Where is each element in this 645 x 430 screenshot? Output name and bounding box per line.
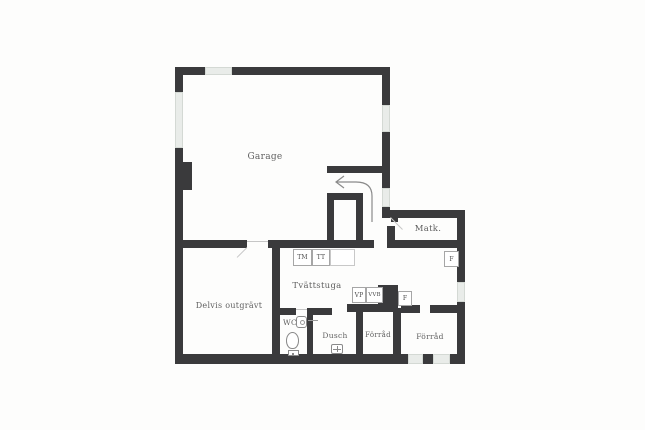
fixture-freezer-2: F <box>444 251 459 267</box>
wall-mid-2 <box>268 240 374 248</box>
wall-mid-1 <box>175 240 247 248</box>
room-label-garage: Garage <box>230 152 300 162</box>
fixture-washing-machine: TM <box>293 249 312 266</box>
fixture-water-heater: VVB <box>366 287 383 303</box>
room-label-delvis: Delvis outgrävt <box>188 301 270 310</box>
room-label-dusch: Dusch <box>315 331 355 340</box>
window-right <box>457 282 465 302</box>
room-label-forrad-2: Förråd <box>408 332 452 341</box>
window-bottom-2 <box>433 354 450 364</box>
wall-matk-top <box>382 210 465 218</box>
floor-plan: Garage Matk. Tvättstuga Delvis outgrävt … <box>0 0 645 430</box>
sink-icon <box>296 316 307 328</box>
fixture-heat-pump: VP <box>352 287 366 303</box>
door-garage-delvis <box>247 241 268 242</box>
door-swing-delvis <box>237 247 248 258</box>
wall-forrad2-top-a <box>401 305 420 313</box>
room-label-matk: Matk. <box>402 224 454 234</box>
fixture-dryer: TT <box>312 249 330 266</box>
direction-arrow-icon <box>325 170 385 230</box>
floor-drain-icon <box>331 344 343 354</box>
wall-delvis-divider <box>272 248 280 354</box>
counter-line <box>308 320 318 321</box>
fixture-bench <box>330 249 355 266</box>
window-left <box>175 92 183 148</box>
window-top <box>205 67 232 75</box>
door-wc <box>296 309 307 310</box>
wall-wc-top <box>280 308 296 315</box>
fixture-freezer-1: F <box>398 291 412 306</box>
wall-forrad2-top-b <box>430 305 457 313</box>
wall-forrad-divider <box>393 308 401 354</box>
wall-matk-bottom <box>395 240 457 248</box>
room-label-tvattstuga: Tvättstuga <box>284 281 350 291</box>
wall-pilaster <box>183 162 192 190</box>
toilet-icon <box>286 332 300 357</box>
wall-dusch-top <box>313 308 332 315</box>
wall-matk-left-stub <box>387 226 395 248</box>
room-label-forrad-1: Förråd <box>362 331 394 339</box>
window-bottom-1 <box>408 354 423 364</box>
window-garage-right-1 <box>382 105 390 132</box>
